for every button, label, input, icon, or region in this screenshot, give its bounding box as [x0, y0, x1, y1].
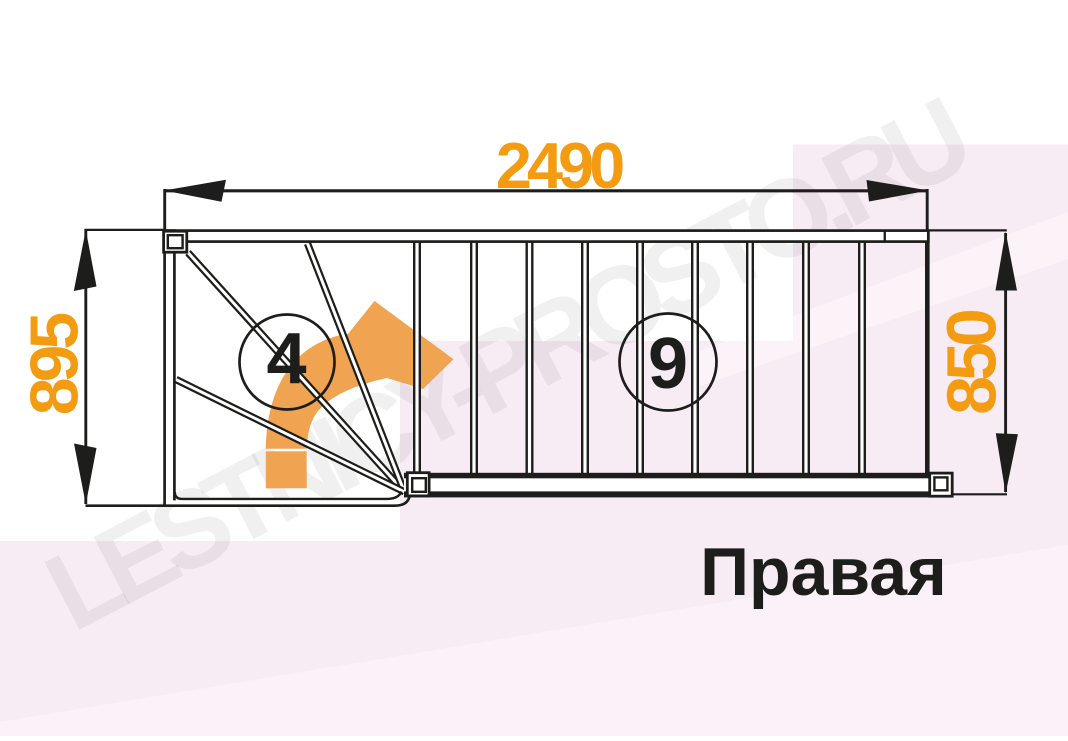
svg-text:Правая: Правая [700, 534, 947, 610]
svg-text:2490: 2490 [496, 129, 623, 202]
svg-text:850: 850 [933, 310, 1011, 415]
svg-text:895: 895 [17, 314, 93, 416]
svg-text:4: 4 [266, 319, 306, 399]
svg-text:9: 9 [648, 324, 688, 404]
